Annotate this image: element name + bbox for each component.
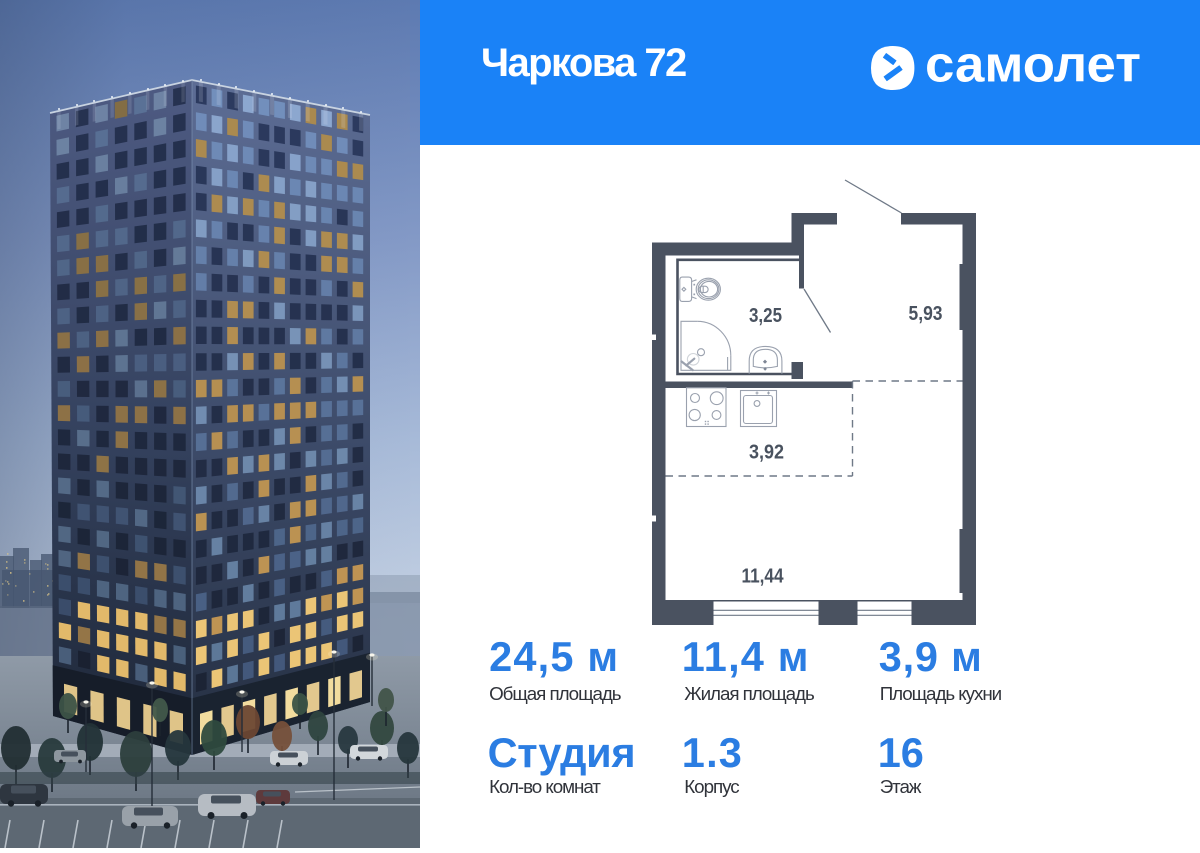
svg-text:5,93: 5,93	[909, 303, 943, 325]
svg-text:самолет: самолет	[925, 38, 1141, 93]
svg-text:3,25: 3,25	[749, 305, 782, 327]
svg-text:3,92: 3,92	[749, 442, 784, 464]
svg-text:11,44: 11,44	[742, 566, 785, 588]
